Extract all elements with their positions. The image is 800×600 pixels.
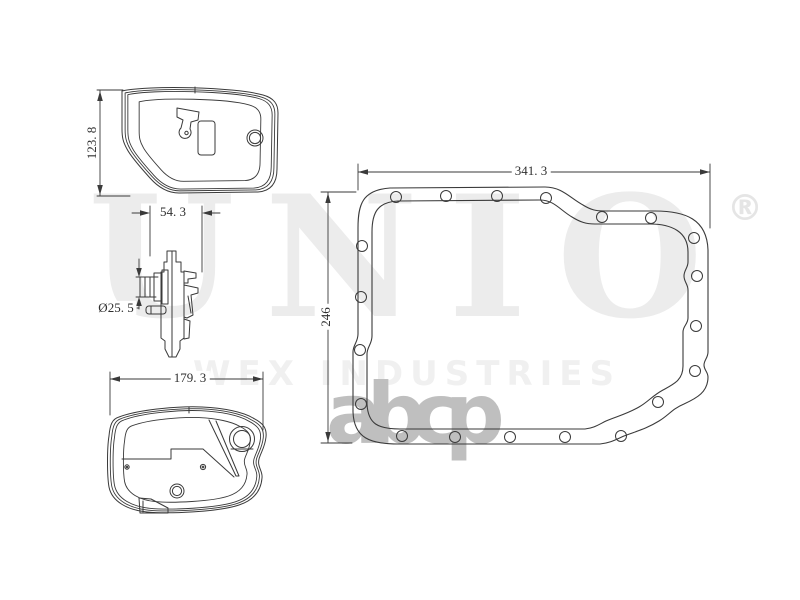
product-technical-drawing: UNIO® WEX INDUSTRIES abcp	[0, 0, 800, 600]
gasket-outer-edge	[353, 187, 708, 444]
filter-side-view-drawing	[140, 251, 198, 357]
slot-opening-detail	[198, 121, 215, 155]
dimension-lines	[97, 90, 710, 443]
dimension-label-gasket-width: 341. 3	[512, 164, 551, 178]
dimension-label-filter-side-width: 54. 3	[157, 205, 189, 219]
dimension-label-filter-height: 123. 8	[85, 124, 99, 163]
dimension-label-gasket-height: 246	[319, 304, 333, 330]
gasket-inner-edge	[367, 200, 688, 429]
gasket-drawing	[353, 187, 708, 444]
dimension-label-hub-diameter: Ø25. 5	[95, 301, 136, 315]
gasket-bolt-holes	[355, 191, 703, 443]
filter-bottom-view-drawing	[108, 407, 267, 513]
filter-top-view-drawing	[122, 87, 278, 193]
dimension-label-filter-bottom-width: 179. 3	[171, 371, 210, 385]
